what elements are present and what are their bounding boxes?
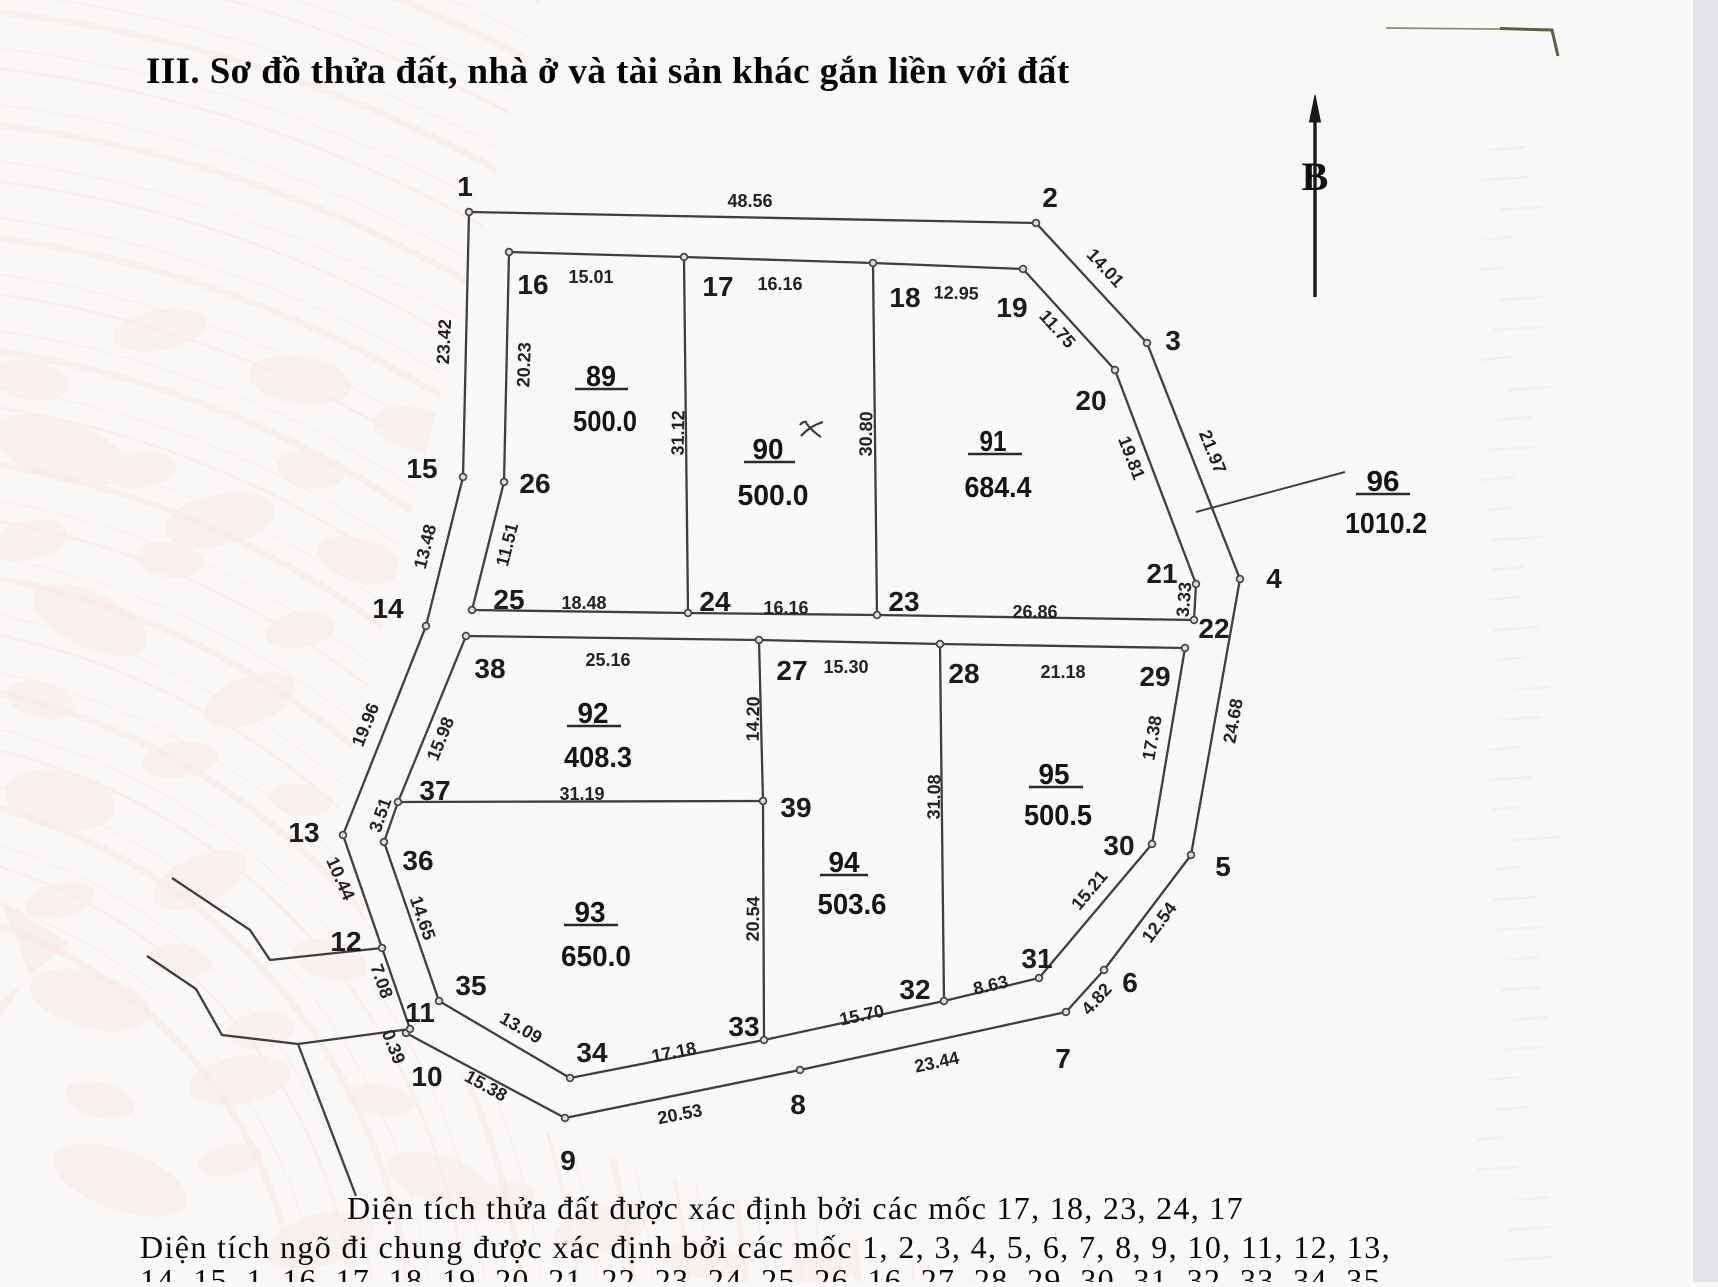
svg-text:Diện tích ngõ đi chung được xá: Diện tích ngõ đi chung được xác định bởi… [140, 1229, 1391, 1265]
svg-text:684.4: 684.4 [965, 472, 1032, 504]
svg-text:30: 30 [1103, 830, 1134, 861]
svg-text:19: 19 [996, 292, 1027, 323]
svg-text:10: 10 [411, 1061, 442, 1092]
svg-text:21.18: 21.18 [1040, 662, 1085, 682]
svg-text:25.16: 25.16 [585, 650, 630, 670]
svg-text:18.48: 18.48 [561, 593, 606, 613]
svg-text:2: 2 [1042, 182, 1058, 213]
svg-text:20.54: 20.54 [743, 896, 764, 941]
svg-text:13: 13 [288, 817, 319, 848]
svg-text:31.08: 31.08 [924, 774, 945, 819]
svg-text:32: 32 [899, 974, 930, 1005]
svg-text:39: 39 [780, 792, 811, 823]
svg-text:23.42: 23.42 [433, 319, 455, 365]
svg-text:35: 35 [455, 970, 486, 1001]
svg-text:11: 11 [405, 997, 435, 1028]
svg-text:20.23: 20.23 [513, 342, 535, 388]
svg-text:17: 17 [702, 271, 733, 302]
svg-text:36: 36 [402, 845, 433, 876]
svg-text:III. Sơ đồ thửa đất, nhà ở và: III. Sơ đồ thửa đất, nhà ở và tài sản kh… [146, 51, 1070, 92]
svg-text:9: 9 [560, 1145, 576, 1176]
svg-text:15: 15 [406, 453, 437, 484]
svg-text:B: B [1302, 154, 1329, 199]
svg-text:48.56: 48.56 [727, 191, 772, 211]
svg-text:7: 7 [1055, 1043, 1071, 1074]
svg-text:34: 34 [576, 1037, 608, 1068]
svg-text:5: 5 [1215, 851, 1231, 882]
svg-text:503.6: 503.6 [818, 889, 887, 921]
svg-text:20: 20 [1075, 385, 1106, 416]
svg-text:15.30: 15.30 [823, 657, 868, 677]
svg-text:28: 28 [948, 658, 979, 689]
svg-text:14.20: 14.20 [743, 696, 764, 741]
svg-text:6: 6 [1122, 967, 1138, 998]
svg-text:18: 18 [889, 282, 920, 313]
svg-text:31.19: 31.19 [559, 784, 604, 804]
svg-text:24: 24 [699, 586, 731, 617]
svg-text:500.0: 500.0 [573, 406, 637, 438]
svg-text:23: 23 [888, 586, 919, 617]
svg-text:1: 1 [457, 171, 473, 202]
svg-text:33: 33 [728, 1011, 759, 1042]
svg-text:37: 37 [419, 775, 450, 806]
svg-text:14: 14 [372, 593, 404, 624]
svg-text:8: 8 [790, 1089, 806, 1120]
svg-text:26.86: 26.86 [1012, 602, 1057, 622]
svg-text:Diện tích thửa đất được xác đị: Diện tích thửa đất được xác định bởi các… [347, 1190, 1244, 1226]
svg-text:3: 3 [1165, 325, 1181, 356]
svg-text:15.01: 15.01 [568, 267, 613, 287]
svg-text:650.0: 650.0 [561, 941, 631, 973]
svg-text:29: 29 [1139, 661, 1170, 692]
svg-text:3.33: 3.33 [1173, 581, 1196, 618]
svg-text:14, 15, 1, 16, 17, 18, 19, 20,: 14, 15, 1, 16, 17, 18, 19, 20, 21, 22, 2… [140, 1262, 1390, 1282]
svg-text:500.5: 500.5 [1024, 800, 1092, 832]
svg-text:31.12: 31.12 [668, 410, 689, 455]
svg-text:31: 31 [1021, 943, 1052, 974]
svg-text:16.16: 16.16 [763, 598, 808, 618]
svg-text:22: 22 [1198, 613, 1229, 644]
svg-text:38: 38 [474, 653, 505, 684]
svg-text:500.0: 500.0 [738, 480, 809, 512]
svg-text:408.3: 408.3 [564, 742, 632, 774]
svg-text:27: 27 [776, 655, 807, 686]
svg-text:12.95: 12.95 [933, 282, 979, 304]
svg-text:16: 16 [517, 269, 548, 300]
svg-text:26: 26 [519, 468, 550, 499]
svg-text:30.80: 30.80 [856, 411, 877, 456]
svg-text:12: 12 [330, 926, 361, 957]
svg-text:1010.2: 1010.2 [1345, 508, 1427, 540]
svg-text:4: 4 [1266, 563, 1282, 594]
svg-text:25: 25 [493, 584, 524, 615]
svg-text:21: 21 [1146, 558, 1177, 589]
svg-text:16.16: 16.16 [757, 274, 802, 294]
